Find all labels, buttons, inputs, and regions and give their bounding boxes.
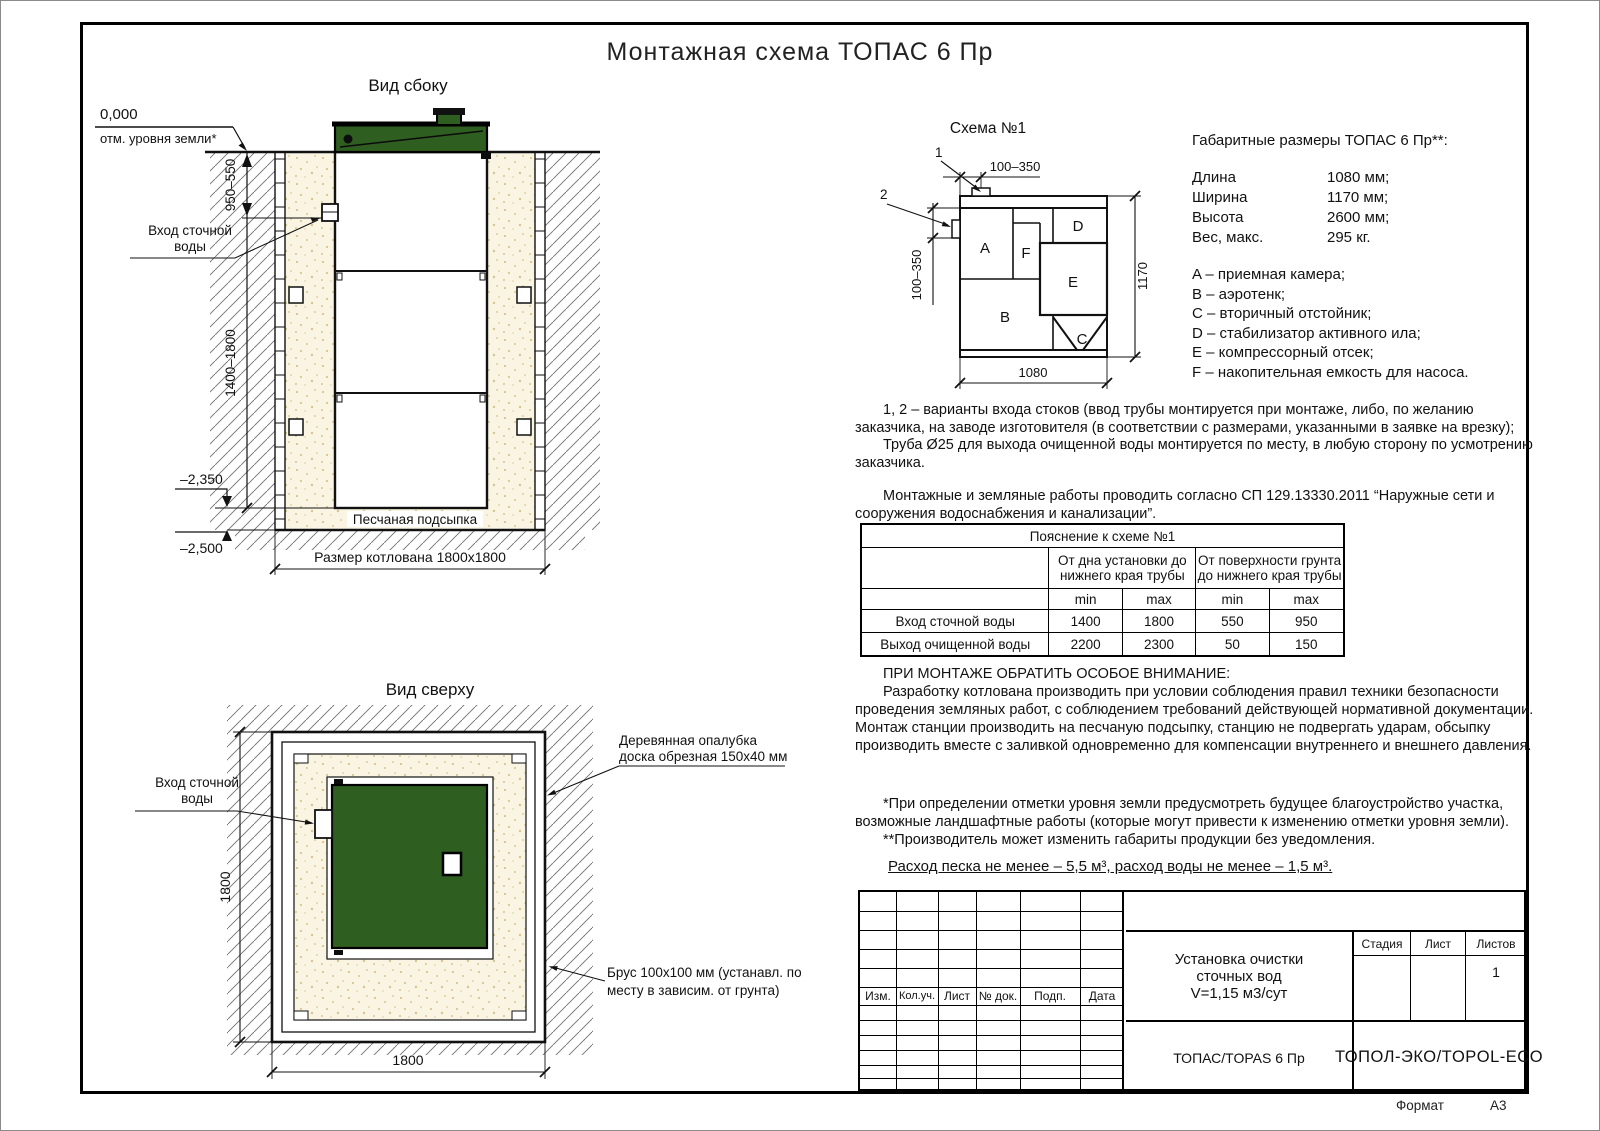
rib (289, 287, 303, 303)
rev-line (860, 1078, 1124, 1079)
stage-header: Стадия (1354, 932, 1410, 956)
level-2500: –2,500 (180, 540, 223, 556)
vent-pipe (437, 114, 461, 125)
dim-1400-1800: 1400–1800 (223, 329, 238, 397)
title-block-right: Установка очистки сточных вод V=1,15 м3/… (1126, 892, 1524, 1093)
zero-level: 0,000 (100, 106, 138, 123)
sheets-value: 1 (1465, 956, 1526, 1022)
inlet-label-2: воды (174, 239, 206, 254)
row-value: 50 (1195, 633, 1268, 655)
side-view-drawing: Вид сбоку Песчаная подсыпка 0,000 отм. у… (85, 75, 625, 600)
marker-2: 2 (880, 187, 888, 202)
rib (517, 287, 531, 303)
compartment-c: C (1077, 331, 1088, 348)
table-row: Вход сточной воды 1400 1800 550 950 (862, 609, 1343, 632)
legend-item: C – вторичный отстойник; (1192, 304, 1502, 324)
vent-cap (433, 108, 465, 115)
row-value: 950 (1269, 610, 1343, 632)
rev-line (860, 968, 1124, 969)
rib (517, 419, 531, 435)
beam-label-2: месту в зависим. от грунта) (607, 983, 779, 998)
formwork-label-1: Деревянная опалубка (619, 733, 758, 748)
spec-row: Длина1080 мм; (1192, 168, 1502, 188)
divider-notch (480, 273, 485, 280)
spec-label: Высота (1192, 208, 1327, 228)
doc-title-3: V=1,15 м3/сут (1191, 985, 1288, 1002)
marker-2-arrow (942, 221, 951, 227)
tank-body (335, 152, 487, 508)
row-value: 150 (1269, 633, 1343, 655)
row-value: 2300 (1122, 633, 1195, 655)
inlet-label-2: воды (181, 791, 213, 806)
pit-size-label: Размер котлована 1800х1800 (314, 549, 506, 565)
row-value: 2200 (1048, 633, 1121, 655)
table-row: Выход очищенной воды 2200 2300 50 150 (862, 632, 1343, 655)
table-corner-cell (862, 548, 1048, 588)
rev-line (860, 911, 1124, 912)
sheets-header: Листов (1465, 932, 1526, 956)
doc-title-2: сточных вод (1196, 968, 1281, 985)
board-notch (512, 1011, 526, 1020)
notes-block: 1, 2 – варианты входа стоков (ввод трубы… (855, 402, 1537, 523)
legend-item: E – компрессорный отсек; (1192, 343, 1502, 363)
legend-item: F – накопительная емкость для насоса. (1192, 363, 1502, 383)
compartment-f: F (1021, 245, 1030, 262)
spec-value: 295 кг. (1327, 228, 1371, 248)
inlet-pipe-stub-top (315, 810, 332, 838)
lid-tab (481, 152, 491, 159)
attention-body: Разработку котлована производить при усл… (855, 683, 1537, 755)
top-view-title: Вид сверху (386, 680, 475, 699)
station-lid-top (332, 785, 487, 948)
note-sp: Монтажные и земляные работы проводить со… (855, 488, 1537, 523)
lid-latch (344, 135, 353, 144)
board-notch (294, 754, 308, 763)
schema-inlet-stub (952, 220, 960, 238)
legend-item: B – аэротенк; (1192, 285, 1502, 305)
spec-row: Вес, макс.295 кг. (1192, 228, 1502, 248)
divider-notch (337, 273, 342, 280)
formwork-left (275, 152, 285, 530)
top-dim-left: 1800 (217, 871, 233, 902)
formwork-label-2: доска обрезная 150х40 мм (619, 749, 787, 764)
ground-hatch-bottom (235, 530, 585, 550)
footnotes-block: *При определении отметки уровня земли пр… (855, 795, 1545, 849)
rev-header-list: Лист (938, 988, 976, 1005)
spec-row: Высота2600 мм; (1192, 208, 1502, 228)
rev-line (860, 1020, 1124, 1021)
zero-caption: отм. уровня земли* (100, 131, 217, 146)
spec-label: Вес, макс. (1192, 228, 1327, 248)
title-block: Изм. Кол.уч. Лист № док. Подп. Дата Уста… (858, 890, 1526, 1091)
lid-clip (334, 950, 343, 955)
level-2350: –2,350 (180, 471, 223, 487)
table-empty-cell (862, 589, 1048, 609)
doc-title-cell: Установка очистки сточных вод V=1,15 м3/… (1126, 932, 1352, 1022)
format-value: А3 (1490, 1098, 1507, 1113)
spec-row: Ширина1170 мм; (1192, 188, 1502, 208)
row-name: Выход очищенной воды (862, 633, 1048, 655)
spec-value: 2600 мм; (1327, 208, 1389, 228)
side-view-title: Вид сбоку (368, 76, 448, 95)
page-title: Монтажная схема ТОПАС 6 Пр (500, 38, 1100, 67)
sand-label: Песчаная подсыпка (353, 512, 478, 527)
compartment-a: A (980, 240, 990, 257)
spec-value: 1080 мм; (1327, 168, 1389, 188)
board-notch (294, 1011, 308, 1020)
spec-label: Длина (1192, 168, 1327, 188)
explanation-table: Пояснение к схеме №1 От дна установки до… (860, 523, 1345, 657)
row-value: 1800 (1122, 610, 1195, 632)
sheet-header: Лист (1410, 932, 1465, 956)
attention-block: ПРИ МОНТАЖЕ ОБРАТИТЬ ОСОБОЕ ВНИМАНИЕ: Ра… (855, 665, 1537, 755)
rev-line (860, 1005, 1124, 1006)
schema-title: Схема №1 (950, 120, 1026, 137)
rev-header-podp: Подп. (1020, 988, 1080, 1005)
schema-dim-bottom: 1080 (1019, 365, 1048, 380)
table-group2-header: От поверхности грунта до нижнего края тр… (1195, 548, 1343, 588)
schema-dim-left: 100–350 (909, 250, 924, 301)
rev-header-data: Дата (1080, 988, 1124, 1005)
rev-line (860, 1065, 1124, 1066)
stage-value (1354, 956, 1410, 1022)
spec-label: Ширина (1192, 188, 1327, 208)
sheet-value (1410, 956, 1465, 1022)
rev-header-ndok: № док. (976, 988, 1020, 1005)
formwork-right (535, 152, 545, 530)
table-min-header: min (1048, 589, 1121, 609)
schema-dim-right: 1170 (1135, 262, 1150, 290)
table-max-header: max (1269, 589, 1343, 609)
specs-title: Габаритные размеры ТОПАС 6 Пр**: (1192, 131, 1502, 150)
note-pipe: Труба Ø25 для выхода очищенной воды монт… (855, 437, 1537, 472)
footnote-2: **Производитель может изменить габариты … (855, 831, 1545, 849)
table-min-header: min (1195, 589, 1268, 609)
spec-value: 1170 мм; (1327, 188, 1388, 208)
format-label: Формат (1396, 1098, 1444, 1113)
footnote-1: *При определении отметки уровня земли пр… (855, 795, 1545, 831)
rev-line (860, 949, 1124, 950)
legend-item: D – стабилизатор активного ила; (1192, 324, 1502, 344)
divider-notch (480, 395, 485, 402)
row-value: 550 (1195, 610, 1268, 632)
marker-2-leader (887, 204, 948, 225)
compartment-b: B (1000, 309, 1010, 326)
row-name: Вход сточной воды (862, 610, 1048, 632)
board-notch (512, 754, 526, 763)
consumption-note: Расход песка не менее – 5,5 м³, расход в… (888, 858, 1332, 875)
specs-block: Габаритные размеры ТОПАС 6 Пр**: Длина10… (1192, 131, 1502, 382)
legend-item: A – приемная камера; (1192, 265, 1502, 285)
top-dim-bottom: 1800 (392, 1052, 423, 1068)
row-value: 1400 (1048, 610, 1121, 632)
compartment-e: E (1068, 274, 1078, 291)
attention-heading: ПРИ МОНТАЖЕ ОБРАТИТЬ ОСОБОЕ ВНИМАНИЕ: (855, 665, 1537, 683)
marker-1: 1 (935, 145, 943, 160)
lid-clip (334, 779, 343, 784)
doc-number-cell (1126, 892, 1524, 932)
rev-line (860, 1050, 1124, 1051)
marker-1-leader (941, 161, 978, 189)
top-view-drawing: Вид сверху Вход сточной воды Деревянная … (85, 655, 825, 1105)
compartment-d: D (1073, 218, 1084, 235)
sand-fill-right (487, 152, 535, 530)
revision-grid: Изм. Кол.уч. Лист № док. Подп. Дата (860, 892, 1124, 1093)
model-cell: ТОПАС/TOPAS 6 Пр (1126, 1022, 1352, 1093)
rev-line (860, 930, 1124, 931)
stage-grid: Стадия Лист Листов 1 (1352, 932, 1524, 1022)
ground-hatch-right (545, 152, 600, 530)
rev-line (860, 1035, 1124, 1036)
beam-label-1: Брус 100х100 мм (устанавл. по (607, 965, 802, 980)
zero-arrow (239, 143, 248, 152)
rev-header-izm: Изм. (860, 988, 896, 1005)
inlet-label-1: Вход сточной (148, 223, 232, 238)
doc-title-1: Установка очистки (1175, 951, 1304, 968)
note-variants: 1, 2 – варианты входа стоков (ввод трубы… (855, 402, 1537, 437)
table-max-header: max (1122, 589, 1195, 609)
company-cell: ТОПОЛ-ЭКО/TOPOL-ECO (1352, 1022, 1524, 1093)
inlet-label-1: Вход сточной (155, 775, 239, 790)
dim-950-550: 950–550 (223, 159, 238, 212)
rib (289, 419, 303, 435)
compartment-legend: A – приемная камера; B – аэротенк; C – в… (1192, 265, 1502, 382)
schema-drawing: Схема №1 A B C D E F 1 2 100–350 100–350… (855, 115, 1155, 410)
divider-notch (337, 395, 342, 402)
table-group1-header: От дна установки до нижнего края трубы (1048, 548, 1195, 588)
rev-header-koluch: Кол.уч. (896, 988, 938, 1005)
table-title: Пояснение к схеме №1 (862, 525, 1343, 547)
vent-hatch (443, 853, 461, 875)
schema-dim-top: 100–350 (990, 159, 1041, 174)
